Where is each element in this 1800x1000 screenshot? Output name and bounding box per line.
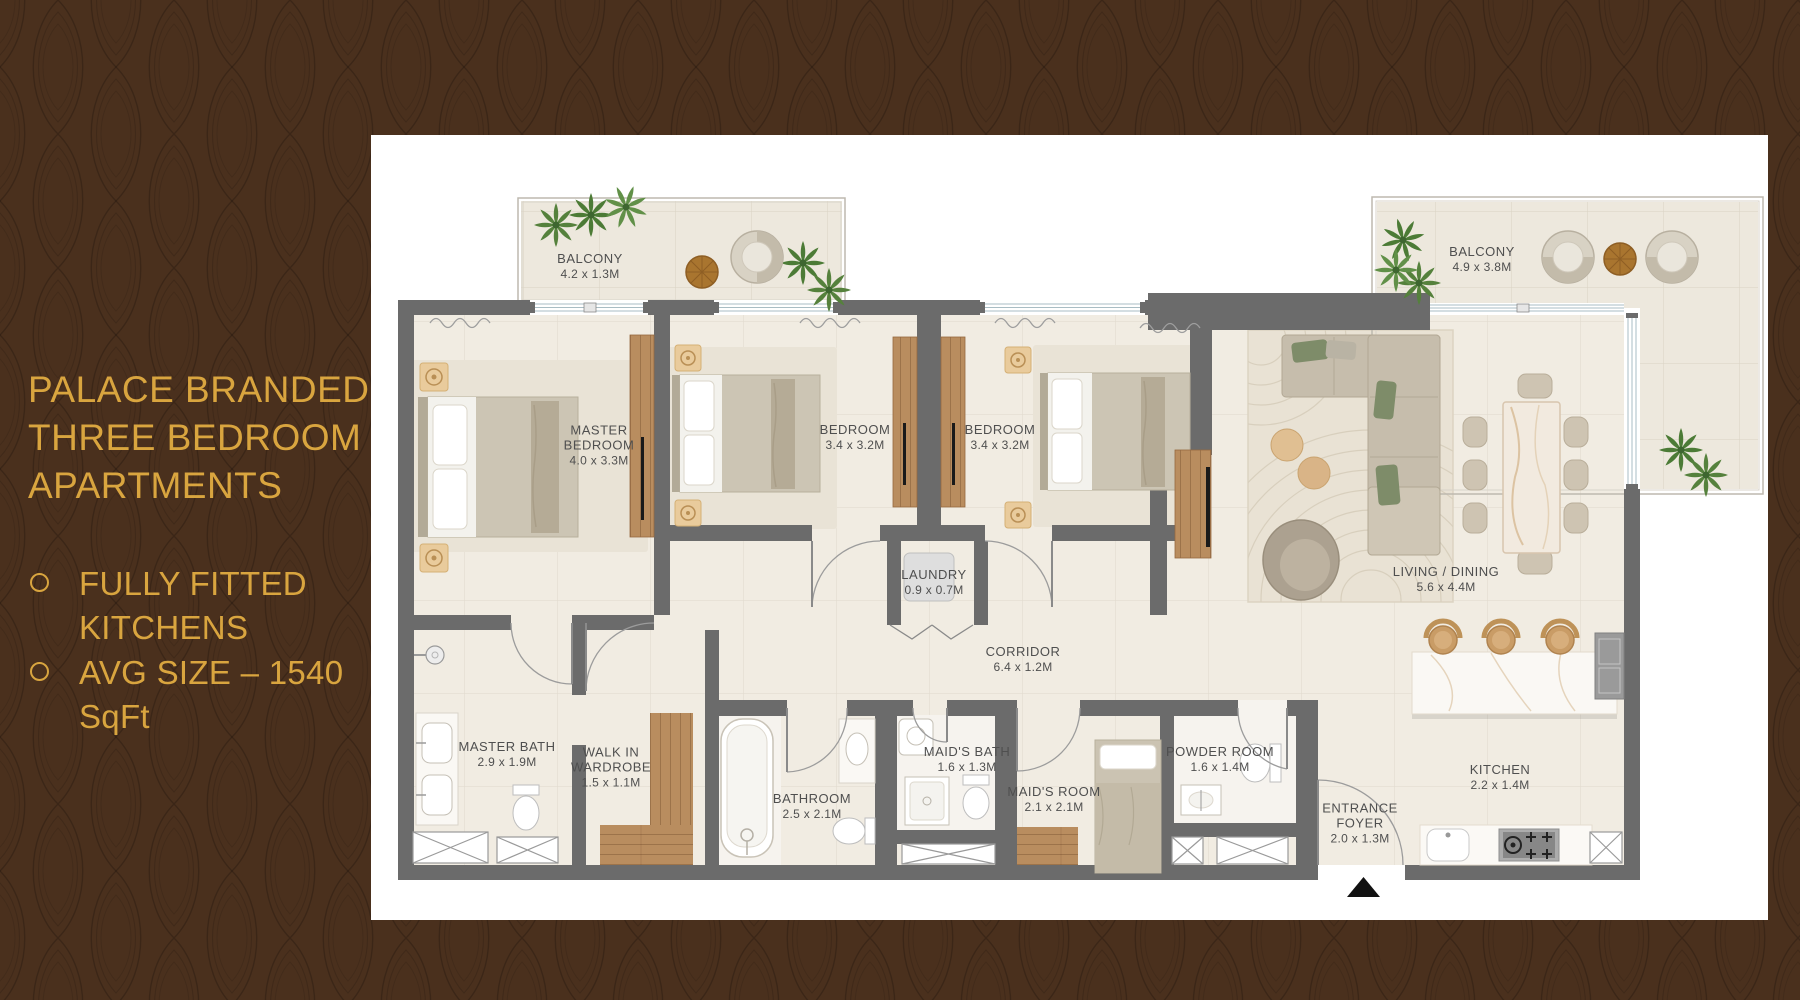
toilet-icon [513, 785, 539, 830]
presentation-slide: { "slide": { "title": "PALACE BRANDED\nT… [0, 0, 1800, 1000]
window-band [980, 300, 1145, 315]
bullet-text: FULLY FITTED KITCHENS [79, 562, 307, 650]
floor-plan-panel: BALCONY4.2 x 1.3M MASTER BEDROOM4.0 x 3.… [371, 135, 1768, 920]
bathtub-icon [721, 719, 773, 857]
list-item: AVG SIZE – 1540 SqFt [28, 651, 348, 739]
toilet-icon [1240, 744, 1281, 782]
laundry-machine [904, 553, 954, 601]
window-band [1624, 313, 1640, 489]
slide-text-block: PALACE BRANDED THREE BEDROOM APARTMENTS … [28, 366, 369, 510]
armchair [1263, 520, 1339, 600]
floor-plan-drawing [371, 135, 1768, 920]
dining-table [1503, 402, 1560, 553]
maids-room-bed [1095, 740, 1161, 873]
list-item: FULLY FITTED KITCHENS [28, 562, 348, 650]
page-title: PALACE BRANDED THREE BEDROOM APARTMENTS [28, 366, 369, 510]
bullet-circle-icon [30, 573, 49, 592]
toilet-icon [833, 818, 875, 844]
entrance-arrow-icon [1347, 877, 1380, 897]
window-band [1430, 303, 1624, 313]
bullet-circle-icon [30, 662, 49, 681]
bullet-list: FULLY FITTED KITCHENS AVG SIZE – 1540 Sq… [28, 562, 348, 740]
window-band [530, 300, 648, 315]
toilet-icon [963, 775, 989, 819]
stove-icon [1499, 829, 1559, 861]
fridge-icon [1595, 633, 1624, 699]
bullet-text: AVG SIZE – 1540 SqFt [79, 651, 343, 739]
shower-tray-icon [905, 777, 949, 825]
tv-console [1175, 450, 1211, 558]
